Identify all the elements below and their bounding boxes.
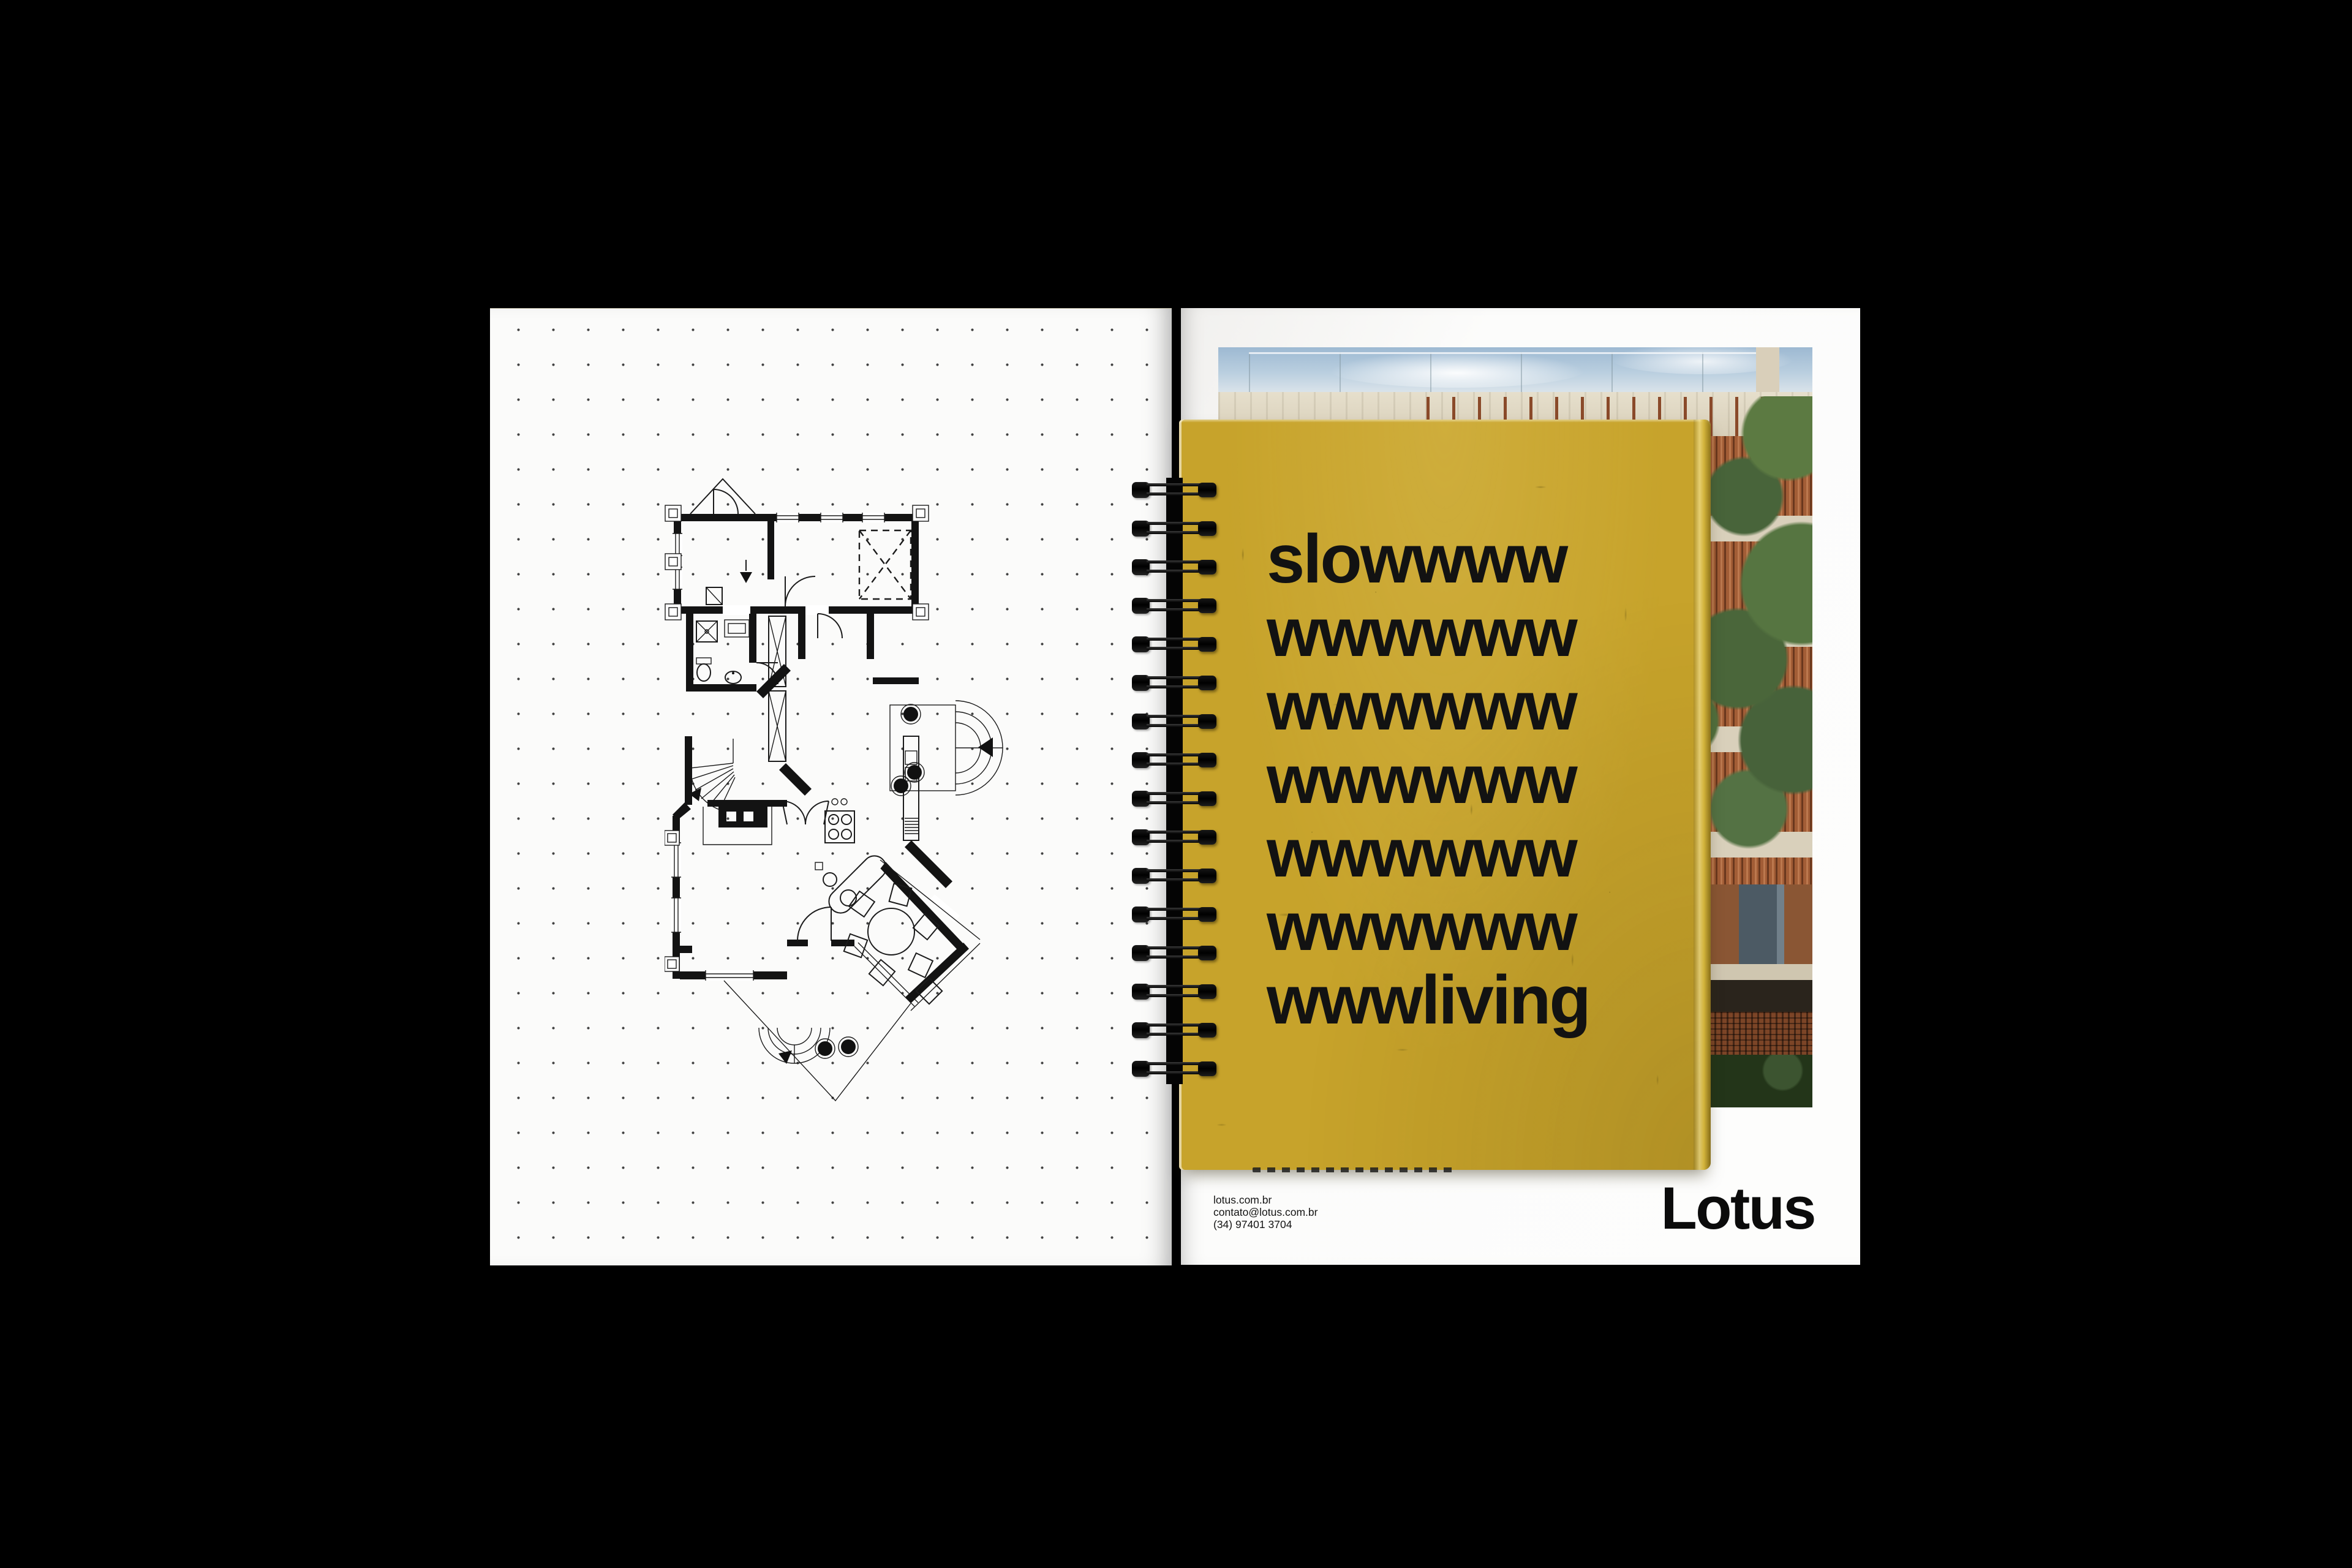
- binding-wire: [1147, 724, 1200, 727]
- occluded-text-sliver: [1253, 1167, 1458, 1172]
- binding-wire: [1147, 1062, 1200, 1065]
- binding-loop: [1132, 868, 1216, 884]
- contact-website: lotus.com.br: [1213, 1194, 1317, 1207]
- binding-loop: [1132, 598, 1216, 614]
- binding-wire: [1147, 831, 1200, 834]
- left-notebook-page: [490, 308, 1172, 1265]
- binding-loop: [1132, 714, 1216, 729]
- binding-wire: [1147, 638, 1200, 641]
- binding-wire-end: [1198, 869, 1216, 883]
- binding-loop: [1132, 521, 1216, 537]
- binding-wire: [1147, 763, 1200, 766]
- headline-line: slowwww: [1267, 522, 1589, 596]
- binding-wire: [1147, 908, 1200, 911]
- binding-loop: [1132, 907, 1216, 922]
- contact-phone: (34) 97401 3704: [1213, 1219, 1317, 1231]
- binding-wire-end: [1198, 946, 1216, 960]
- binding-wire-end: [1198, 521, 1216, 536]
- binding-wire: [1147, 492, 1200, 496]
- binding-wire-end: [1198, 907, 1216, 922]
- headline-line: wwwwww: [1267, 890, 1589, 963]
- photo-glass-railing: [1249, 352, 1761, 392]
- floor-plan: [665, 475, 1020, 1112]
- binding-wire: [1147, 647, 1200, 650]
- binding-loop: [1132, 945, 1216, 961]
- binding-loop: [1132, 1061, 1216, 1077]
- binding-loop: [1132, 636, 1216, 652]
- binding-loop: [1132, 559, 1216, 575]
- floor-plan-drawing: [665, 475, 1020, 1112]
- lotus-wordmark: Lotus: [1660, 1174, 1815, 1243]
- binding-wire: [1147, 560, 1200, 563]
- binding-wire: [1147, 1071, 1200, 1074]
- binding-wire-end: [1198, 753, 1216, 767]
- binding-wire: [1147, 570, 1200, 573]
- binding-loop: [1132, 752, 1216, 768]
- binding-wire-end: [1198, 637, 1216, 652]
- headline-line: wwwwww: [1267, 596, 1589, 669]
- binding-loop: [1132, 984, 1216, 1000]
- binding-wire-end: [1198, 560, 1216, 575]
- binding-wire-end: [1198, 598, 1216, 613]
- binding-wire: [1147, 753, 1200, 756]
- binding-wire: [1147, 522, 1200, 525]
- contact-email: contato@lotus.com.br: [1213, 1207, 1317, 1219]
- binding-wire-end: [1198, 676, 1216, 690]
- binding-wire-end: [1198, 830, 1216, 845]
- binding-wire-end: [1198, 984, 1216, 999]
- binding-wire: [1147, 994, 1200, 997]
- binding-wire: [1147, 917, 1200, 920]
- binding-wire: [1147, 946, 1200, 949]
- binding-loop: [1132, 675, 1216, 691]
- binding-wire: [1147, 1033, 1200, 1036]
- binding-wire: [1147, 792, 1200, 795]
- binding-wire: [1147, 676, 1200, 679]
- headline-line: wwwwww: [1267, 743, 1589, 816]
- binding-wire: [1147, 531, 1200, 534]
- cover-headline: slowwww wwwwww wwwwww wwwwww wwwwww wwww…: [1267, 522, 1589, 1037]
- binding-loop: [1132, 791, 1216, 807]
- binding-wire-end: [1198, 791, 1216, 806]
- binding-wire: [1147, 840, 1200, 843]
- cover-page-stack-edge: [1694, 420, 1711, 1170]
- binding-wire: [1147, 801, 1200, 804]
- binding-wire-end: [1198, 1061, 1216, 1076]
- binding-wire: [1147, 878, 1200, 881]
- headline-line: wwwwww: [1267, 669, 1589, 743]
- headline-line: wwwliving: [1267, 963, 1589, 1037]
- binding-wire: [1147, 608, 1200, 611]
- binding-wire-end: [1198, 714, 1216, 729]
- binding-wire-end: [1198, 483, 1216, 497]
- binding-wire: [1147, 483, 1200, 486]
- binding-loop: [1132, 482, 1216, 498]
- notebook-cover: slowwww wwwwww wwwwww wwwwww wwwwww wwww…: [1179, 420, 1711, 1170]
- binding-wire-end: [1198, 1023, 1216, 1038]
- presentation-spread: lotus.com.br contato@lotus.com.br (34) 9…: [0, 0, 2352, 1568]
- binding-wire: [1147, 985, 1200, 988]
- contact-block: lotus.com.br contato@lotus.com.br (34) 9…: [1213, 1194, 1317, 1231]
- headline-line: wwwwww: [1267, 816, 1589, 890]
- binding-wire: [1147, 599, 1200, 602]
- binding-wire: [1147, 869, 1200, 872]
- binding-wire: [1147, 1023, 1200, 1027]
- binding-wire: [1147, 956, 1200, 959]
- binding-loop: [1132, 829, 1216, 845]
- spiral-binding: [1132, 482, 1216, 1101]
- binding-loop: [1132, 1022, 1216, 1038]
- binding-wire: [1147, 685, 1200, 688]
- binding-wire: [1147, 715, 1200, 718]
